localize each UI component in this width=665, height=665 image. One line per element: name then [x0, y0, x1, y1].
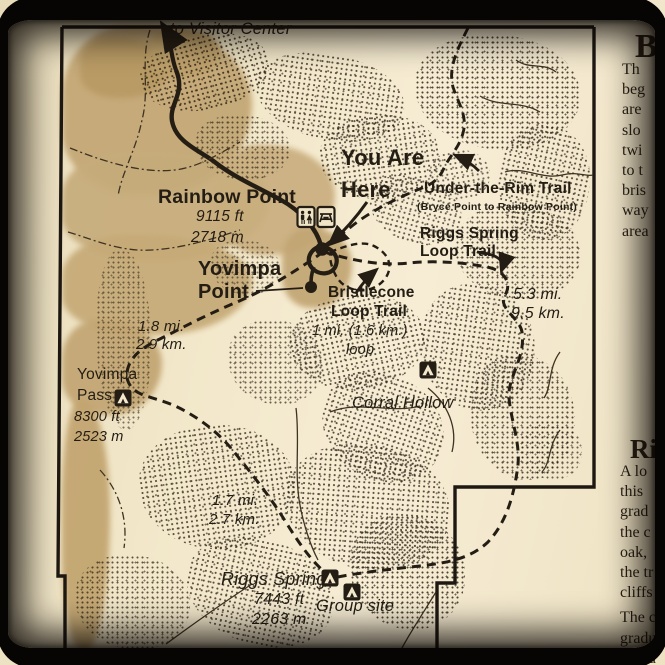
side-text-line: this — [620, 482, 656, 502]
label-dist-1-7: 1.7 mi. — [212, 492, 258, 509]
label-dist-9-5: 9.5 km. — [511, 305, 565, 323]
label-you-are-here-1: You Are — [341, 145, 424, 171]
label-rainbow-point-ft: 9115 ft — [196, 208, 244, 226]
you-are-here-arrow — [331, 202, 367, 243]
side-text-line: the c — [620, 523, 656, 543]
label-yovimpa-pass-2: Pass — [77, 387, 112, 405]
label-yovimpa-pass-ft: 8300 ft — [74, 409, 120, 425]
label-yovimpa-point-1: Yovimpa — [198, 258, 281, 281]
side-text-line: The c — [620, 608, 656, 628]
side-paragraph-2: A lo this grad the c oak, the tr cliffs … — [620, 462, 656, 665]
label-yovimpa-pass-m: 2523 m — [74, 429, 124, 445]
side-text-line: area — [622, 222, 649, 242]
side-text-line: A lo — [620, 462, 656, 482]
label-dist-5-3: 5.3 mi. — [513, 286, 562, 304]
side-text-line: gradu — [620, 629, 656, 649]
label-riggs-spring-ft: 7443 ft — [254, 591, 304, 609]
side-text-line: to t — [622, 161, 649, 181]
label-dist-2-9: 2.9 km. — [136, 336, 187, 353]
label-yovimpa-pass-1: Yovimpa — [77, 366, 137, 384]
you-are-here-dot — [315, 242, 329, 256]
restroom-icon — [298, 207, 315, 227]
side-text-line: bris — [622, 181, 649, 201]
yovimpa-point-dot — [305, 281, 317, 293]
label-you-are-here-2: Here — [341, 177, 391, 203]
label-riggs-spring-m: 2263 m — [252, 611, 307, 629]
label-dist-2-7: 2.7 km. — [209, 511, 260, 528]
campsite-icon-yovimpa-pass — [115, 390, 132, 407]
label-dist-1-8: 1.8 mi. — [138, 318, 184, 335]
label-bristlecone-loop-word: loop — [346, 342, 374, 358]
label-riggs-loop-1: Riggs Spring — [420, 225, 519, 243]
side-text-line: Th — [622, 60, 649, 80]
side-text-line: beg — [622, 80, 649, 100]
yovimpa-point-leader — [256, 288, 303, 291]
label-rainbow-point: Rainbow Point — [158, 186, 296, 209]
map-sign-panel: to Visitor Center You Are Here Rainbow P… — [0, 0, 665, 665]
sign-photo: to Visitor Center You Are Here Rainbow P… — [0, 0, 665, 665]
campsite-icon-corral-hollow — [420, 362, 437, 379]
interpretive-text-column: B Th beg are slo twi to t bris way area … — [603, 0, 665, 665]
label-corral-hollow: Corral Hollow — [352, 394, 454, 413]
label-rainbow-point-m: 2718 m — [191, 229, 244, 247]
side-text-line: east a — [620, 649, 656, 665]
side-text-line: slo — [622, 121, 649, 141]
side-text-line: are — [622, 100, 649, 120]
side-text-line: grad — [620, 502, 656, 522]
side-text-line: twi — [622, 141, 649, 161]
side-paragraph-1: Th beg are slo twi to t bris way area — [622, 60, 649, 242]
label-riggs-loop-2: Loop Trail — [420, 243, 496, 261]
label-bristlecone-1: Bristlecone — [328, 284, 415, 302]
label-bristlecone-dist: 1 mi. (1.6 km.) — [312, 323, 408, 339]
label-under-the-rim-sub: (Bryce Point to Rainbow Point) — [417, 201, 577, 213]
label-under-the-rim: Under-the-Rim Trail — [424, 180, 572, 198]
side-text-line: cliffs — [620, 583, 656, 603]
side-text-line: the tr — [620, 563, 656, 583]
label-bristlecone-2: Loop Trail — [331, 303, 407, 321]
picnic-table-icon — [318, 207, 335, 227]
label-riggs-spring: Riggs Spring — [221, 569, 326, 590]
label-yovimpa-point-2: Point — [198, 281, 249, 304]
side-heading-2: Rig — [630, 434, 665, 465]
side-text-line: way — [622, 201, 649, 221]
side-text-line: oak, — [620, 543, 656, 563]
under-the-rim-arrow — [457, 156, 479, 171]
under-the-rim-trail — [323, 28, 468, 247]
label-group-site: Group site — [316, 597, 394, 616]
label-to-visitor-center: to Visitor Center — [170, 20, 291, 39]
